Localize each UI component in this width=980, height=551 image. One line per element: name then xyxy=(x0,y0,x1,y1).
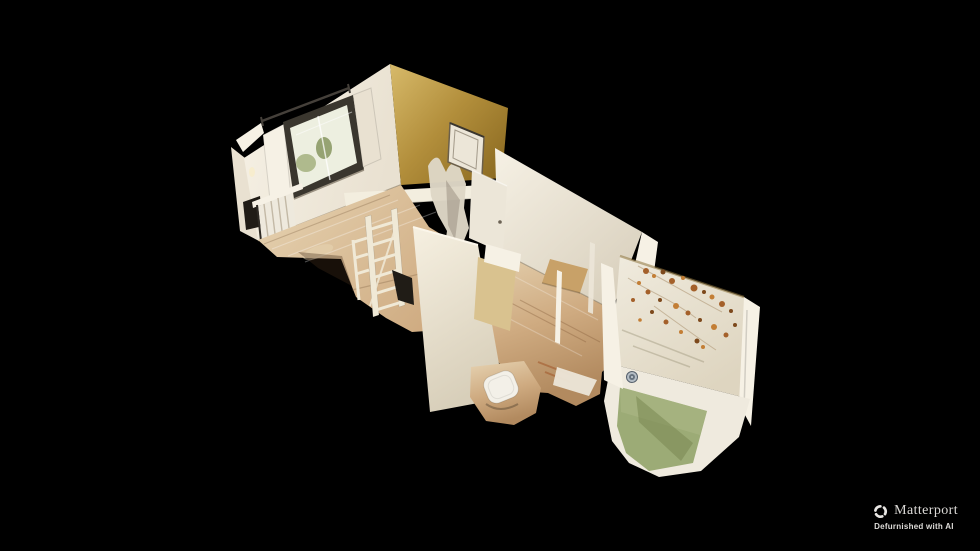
vine-blob xyxy=(652,274,656,278)
vine-blob xyxy=(702,290,706,294)
vine-blob xyxy=(679,330,683,334)
vine-blob xyxy=(637,281,641,285)
vine-blob xyxy=(733,323,737,327)
brand-row: Matterport xyxy=(873,503,958,519)
brand-name: Matterport xyxy=(894,503,958,519)
vine-blob xyxy=(701,345,705,349)
vine-blob xyxy=(673,303,679,309)
vine-blob xyxy=(664,320,669,325)
watermark: Matterport Defurnished with AI xyxy=(873,503,958,531)
vine-blob xyxy=(711,324,717,330)
watermark-subtitle: Defurnished with AI xyxy=(874,522,954,531)
matterport-logo-icon xyxy=(873,504,888,519)
logo-ring xyxy=(874,504,887,517)
vine-blob xyxy=(646,290,651,295)
drain-cover xyxy=(627,372,638,383)
matterport-viewer: Matterport Defurnished with AI xyxy=(0,0,980,551)
vine-blob xyxy=(638,318,642,322)
vine-blob xyxy=(650,310,654,314)
vine-blob xyxy=(661,270,666,275)
vine-blob xyxy=(695,339,700,344)
vine-blob xyxy=(681,276,685,280)
vine-blob xyxy=(724,333,729,338)
door-handle xyxy=(498,220,502,224)
wall-sconce-light xyxy=(249,167,255,177)
vine-blob xyxy=(698,318,702,322)
vine-blob xyxy=(729,309,733,313)
vine-blob xyxy=(710,295,715,300)
vine-blob xyxy=(658,298,662,302)
window-foliage xyxy=(296,154,316,172)
vine-blob xyxy=(691,285,698,292)
vine-blob xyxy=(686,311,691,316)
dollhouse-3d-viewport[interactable] xyxy=(0,0,980,551)
drain-dot xyxy=(631,376,633,378)
vine-blob xyxy=(669,278,675,284)
vine-blob xyxy=(631,298,635,302)
vine-blob xyxy=(643,268,649,274)
vine-blob xyxy=(719,301,725,307)
